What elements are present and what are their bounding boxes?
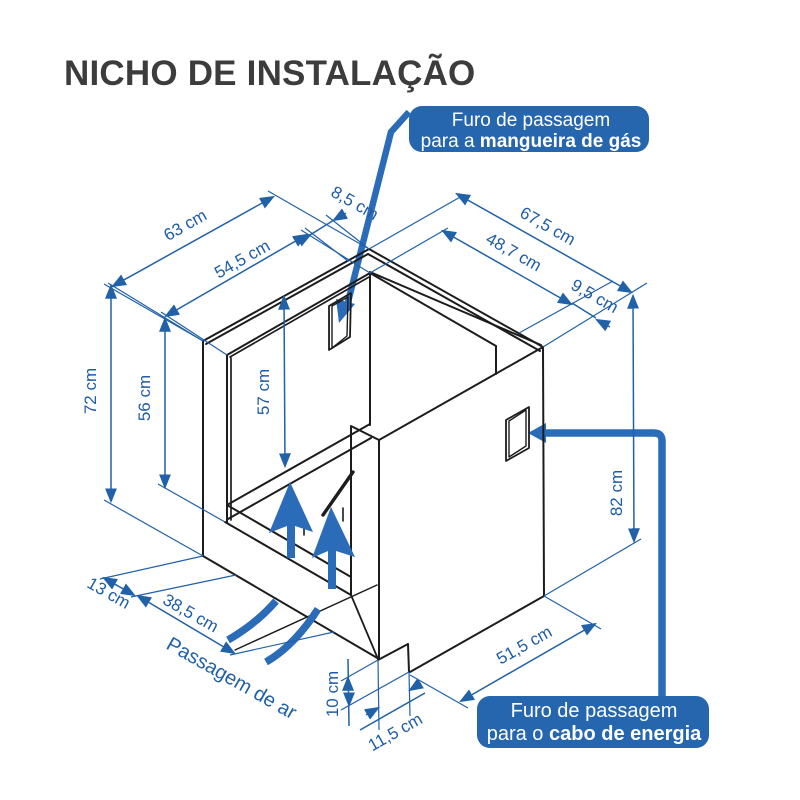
svg-text:11,5 cm: 11,5 cm <box>365 709 426 755</box>
svg-text:NICHO DE INSTALAÇÃO: NICHO DE INSTALAÇÃO <box>64 54 475 93</box>
svg-text:67,5 cm: 67,5 cm <box>517 203 579 249</box>
svg-text:82 cm: 82 cm <box>607 470 626 516</box>
svg-text:56 cm: 56 cm <box>135 375 154 421</box>
svg-text:48,7 cm: 48,7 cm <box>483 229 545 275</box>
svg-text:57 cm: 57 cm <box>254 369 273 415</box>
svg-text:13 cm: 13 cm <box>84 574 134 613</box>
svg-text:63 cm: 63 cm <box>160 206 210 245</box>
svg-text:72 cm: 72 cm <box>81 368 100 414</box>
svg-text:51,5 cm: 51,5 cm <box>493 622 555 668</box>
svg-text:Furo de passagem: Furo de passagem <box>511 700 678 722</box>
svg-text:10 cm: 10 cm <box>323 671 342 717</box>
svg-text:Furo de passagem: Furo de passagem <box>452 110 610 131</box>
svg-text:38,5 cm: 38,5 cm <box>160 590 222 636</box>
svg-text:para o cabo de energia: para o cabo de energia <box>487 723 702 745</box>
svg-text:para a mangueira de gás: para a mangueira de gás <box>421 131 642 152</box>
svg-text:Passagem de ar: Passagem de ar <box>163 633 301 724</box>
